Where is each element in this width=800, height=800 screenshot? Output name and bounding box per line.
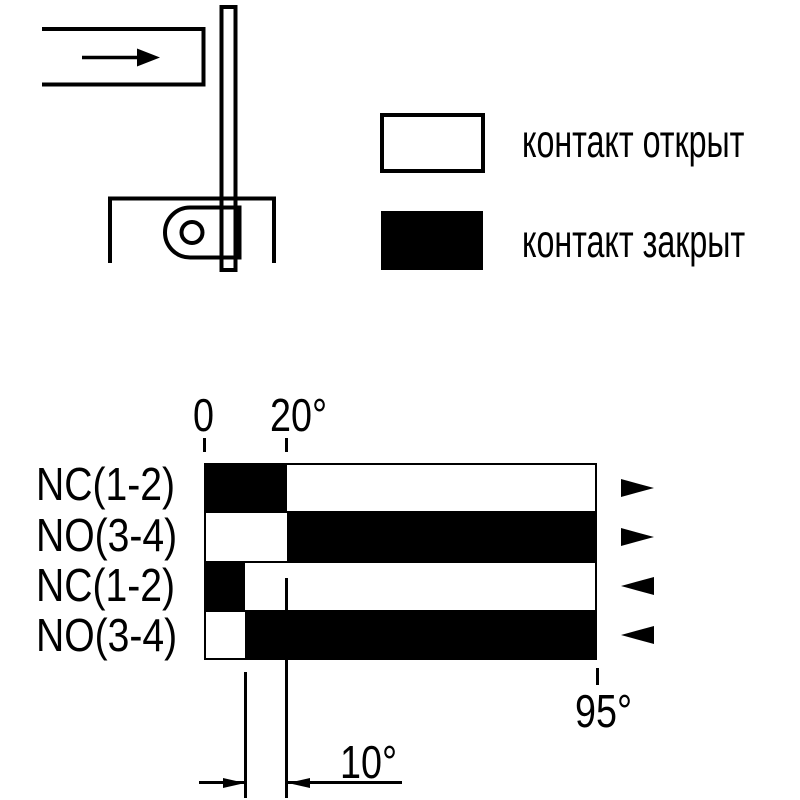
contact-state-chart: NC(1-2)NO(3-4)NC(1-2)NO(3-4)020°95°10°: [0, 0, 800, 800]
direction-arrow-icon: [621, 528, 654, 546]
dimension-arrow-icon: [288, 778, 310, 788]
contact-segment-open: [204, 611, 245, 660]
direction-arrow-icon: [621, 479, 654, 497]
contact-segment-closed: [204, 562, 245, 611]
direction-arrow-icon: [621, 626, 654, 644]
contact-segment-open: [204, 512, 287, 561]
row-divider: [204, 561, 597, 563]
differential-label: 10°: [340, 739, 397, 785]
contact-segment-open: [287, 463, 597, 512]
angle-tick-label: 20°: [270, 392, 327, 438]
contact-segment-closed: [287, 512, 597, 561]
row-divider: [204, 610, 597, 612]
row-divider: [204, 511, 597, 513]
contact-band-box: [204, 463, 597, 660]
dimension-arrow-icon: [223, 778, 245, 788]
row-label: NC(1-2): [36, 461, 175, 507]
row-label: NO(3-4): [36, 612, 177, 658]
angle-tick-label: 0: [193, 392, 214, 438]
angle-tick: [596, 668, 599, 685]
row-label: NC(1-2): [36, 562, 175, 608]
angle-tick-label: 95°: [575, 688, 632, 734]
contact-segment-closed: [204, 463, 287, 512]
contact-segment-closed: [245, 611, 597, 660]
row-label: NO(3-4): [36, 512, 177, 558]
contact-segment-open: [245, 562, 597, 611]
reference-line: [285, 578, 288, 798]
limit-switch-diagram-page: контакт открыт контакт закрыт NC(1-2)NO(…: [0, 0, 800, 800]
direction-arrow-icon: [621, 577, 654, 595]
